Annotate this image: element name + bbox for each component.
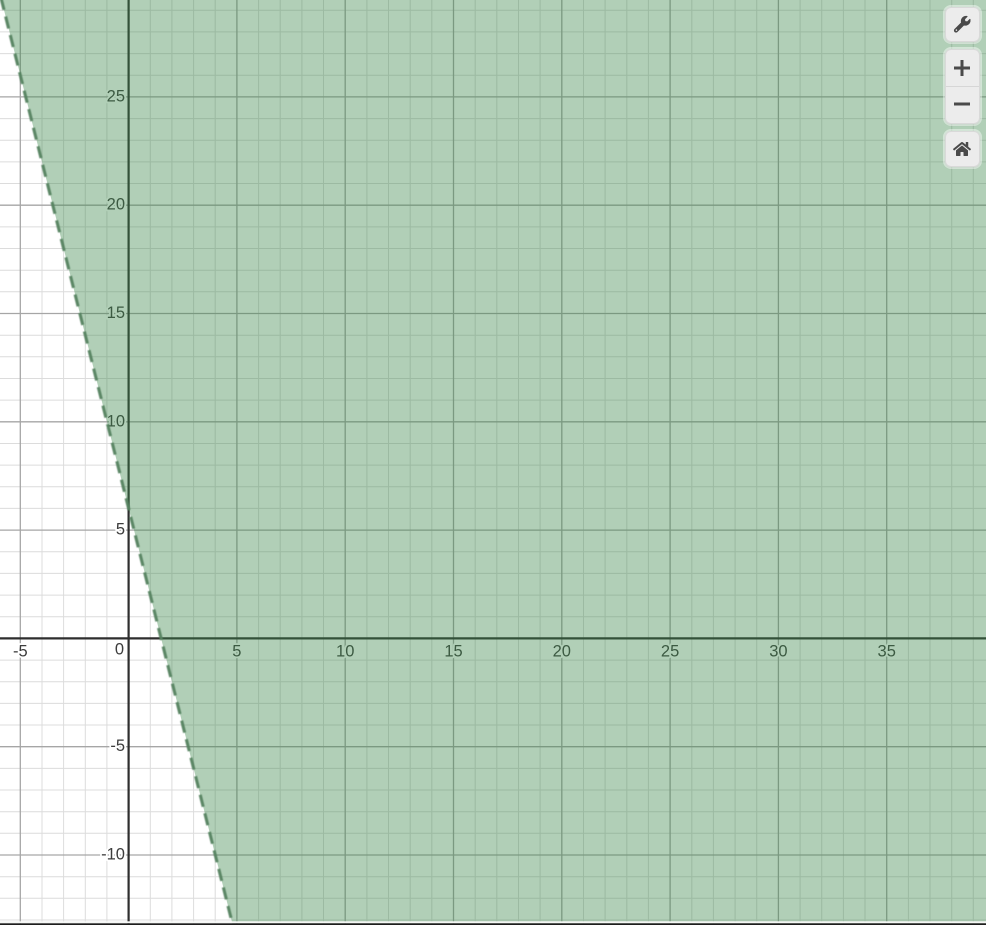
svg-text:-5: -5 bbox=[13, 643, 28, 661]
svg-text:5: 5 bbox=[116, 521, 125, 539]
svg-text:-10: -10 bbox=[101, 846, 125, 864]
svg-text:-5: -5 bbox=[110, 737, 125, 755]
svg-text:0: 0 bbox=[115, 641, 124, 659]
